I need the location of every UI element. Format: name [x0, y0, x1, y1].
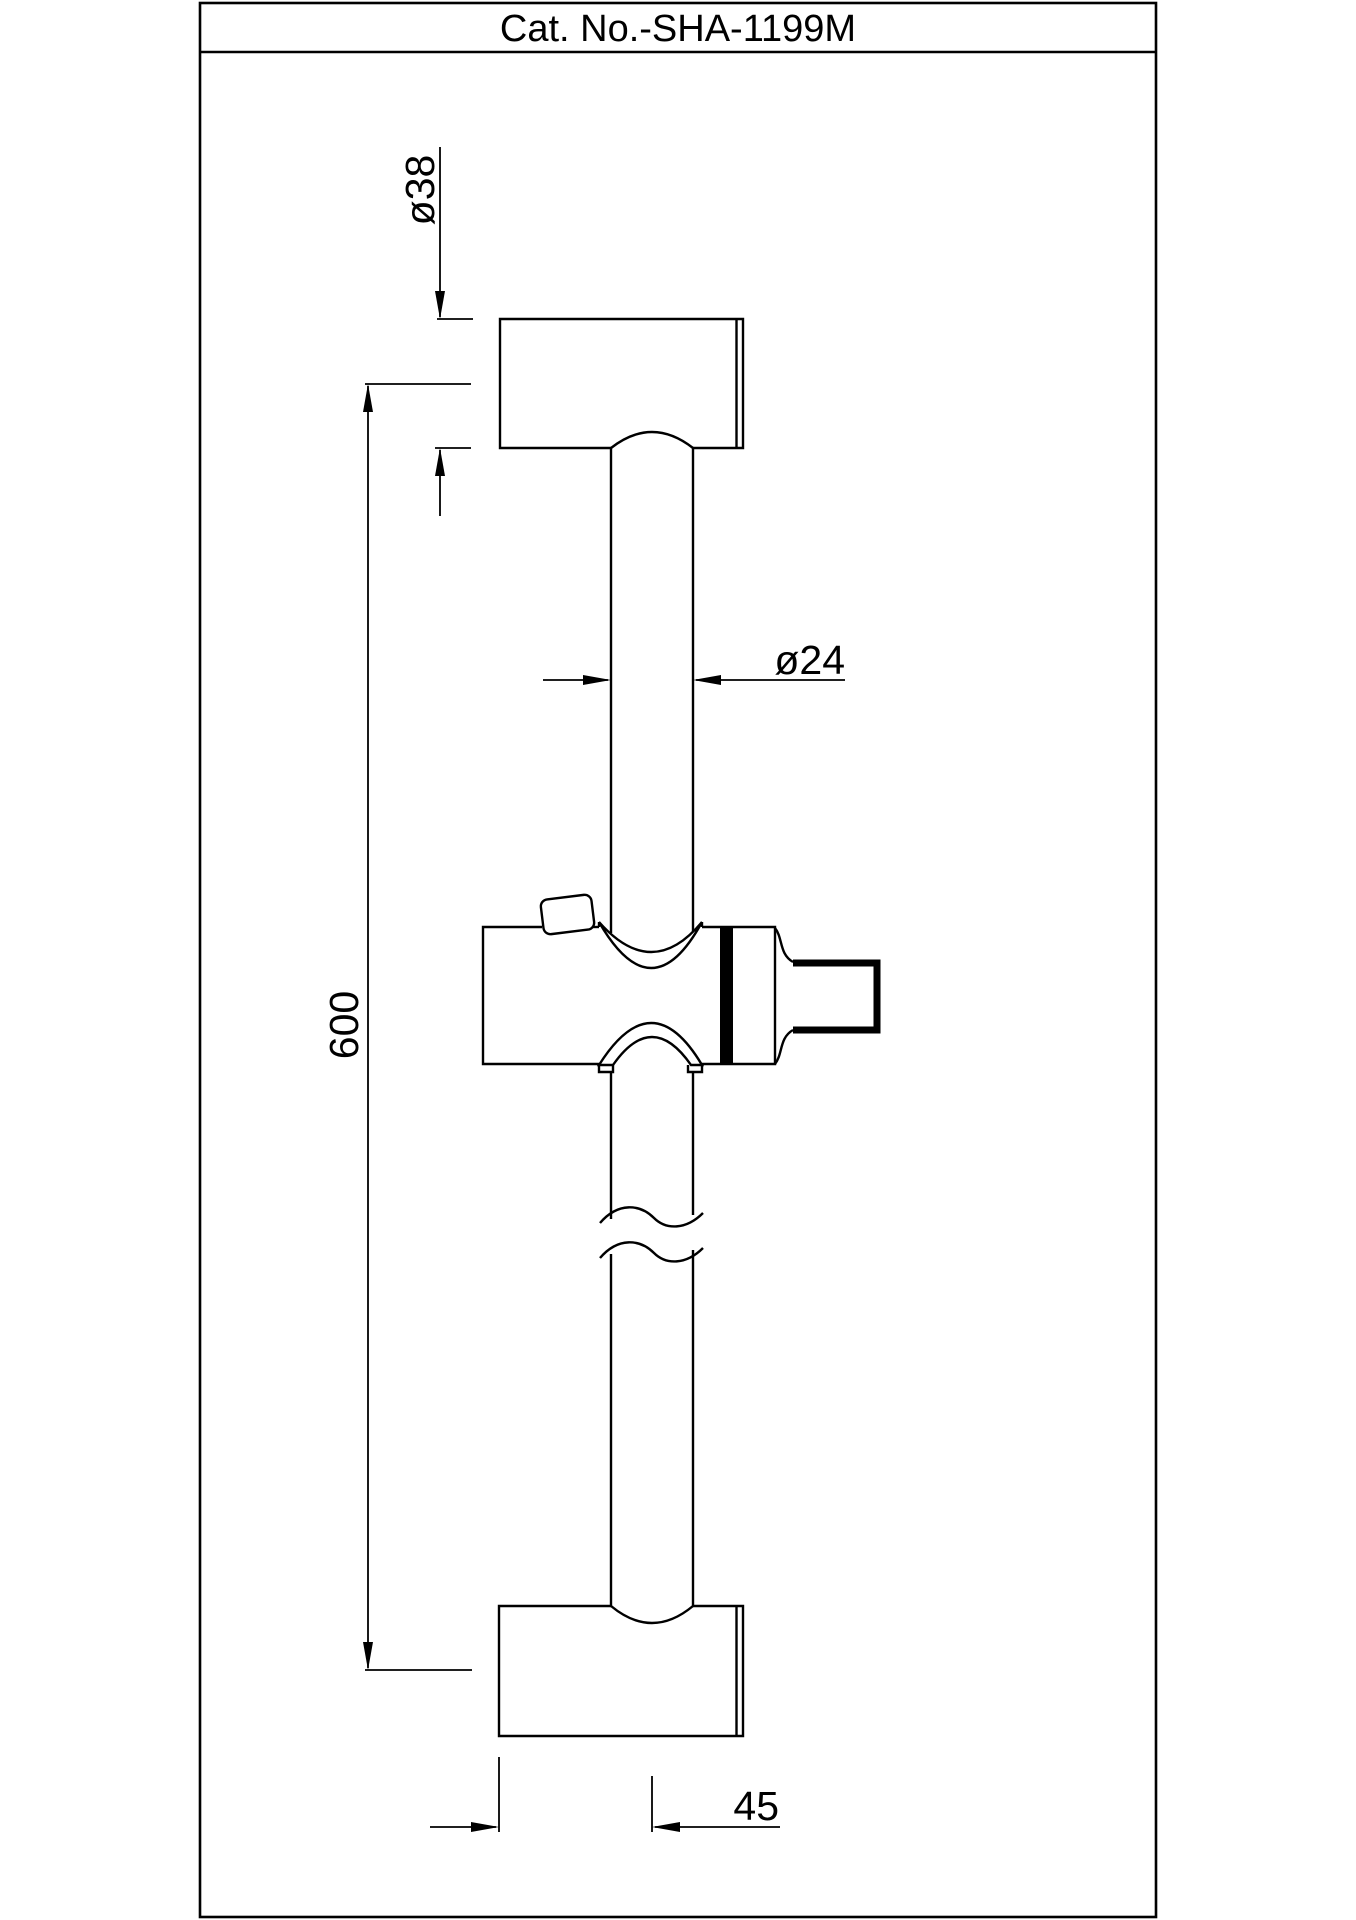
arrowhead-right — [583, 675, 611, 685]
dimension-rail-length: 600 — [321, 384, 472, 1670]
catalog-number-text: Cat. No.-SHA-1199M — [500, 8, 856, 50]
title-block: Cat. No.-SHA-1199M — [200, 3, 1156, 1917]
rail-end-dome — [611, 432, 693, 448]
slider-lock-button — [540, 894, 595, 935]
top-saddle — [599, 922, 702, 968]
rail-end-dip — [611, 1606, 693, 1623]
handshower-holder-cup — [793, 963, 877, 1030]
drawing-frame — [200, 3, 1156, 1917]
dim-text-600: 600 — [321, 991, 367, 1059]
dimension-wall-offset: 45 — [430, 1757, 780, 1832]
arrowhead-down — [363, 1642, 373, 1670]
slider-body-left — [483, 927, 599, 1064]
top-bracket — [500, 319, 743, 448]
arrowhead-right — [471, 1822, 499, 1832]
dim-text-45: 45 — [733, 1783, 779, 1829]
slider-lock-band — [720, 927, 733, 1064]
bottom-saddle — [599, 1023, 702, 1065]
arrowhead-up — [435, 448, 445, 476]
slider-assembly — [483, 894, 877, 1072]
arrowhead-left — [693, 675, 721, 685]
dim-text-38: ø38 — [397, 155, 443, 226]
slider-body-right — [702, 927, 775, 1064]
drawing-sheet: Cat. No.-SHA-1199M — [0, 0, 1356, 1920]
arrowhead-up — [363, 384, 373, 412]
arrowhead-left — [652, 1822, 680, 1832]
arrowhead-down — [435, 291, 445, 319]
bottom-bracket — [499, 1606, 743, 1736]
dim-text-24: ø24 — [774, 637, 845, 683]
dimension-bracket-diameter: ø38 — [397, 147, 473, 516]
break-lines — [600, 1207, 703, 1261]
